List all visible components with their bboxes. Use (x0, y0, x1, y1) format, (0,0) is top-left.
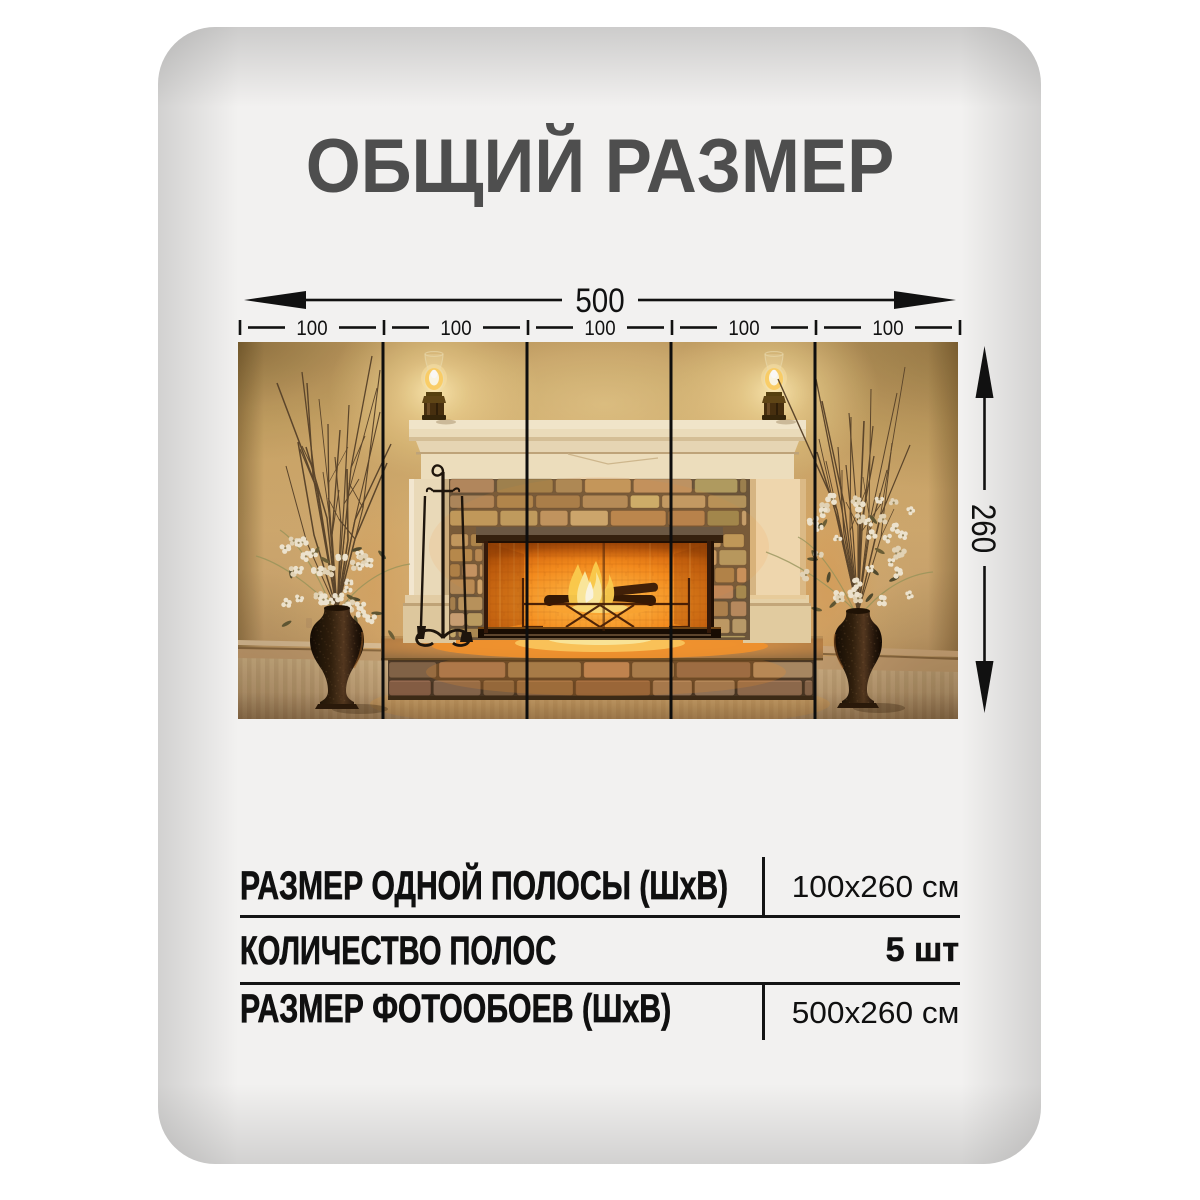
svg-text:100: 100 (728, 317, 759, 340)
svg-text:100: 100 (296, 317, 327, 340)
svg-text:260: 260 (965, 504, 1003, 553)
svg-text:100: 100 (584, 317, 615, 340)
svg-text:100: 100 (440, 317, 471, 340)
svg-text:100: 100 (872, 317, 903, 340)
svg-text:500: 500 (575, 281, 624, 319)
